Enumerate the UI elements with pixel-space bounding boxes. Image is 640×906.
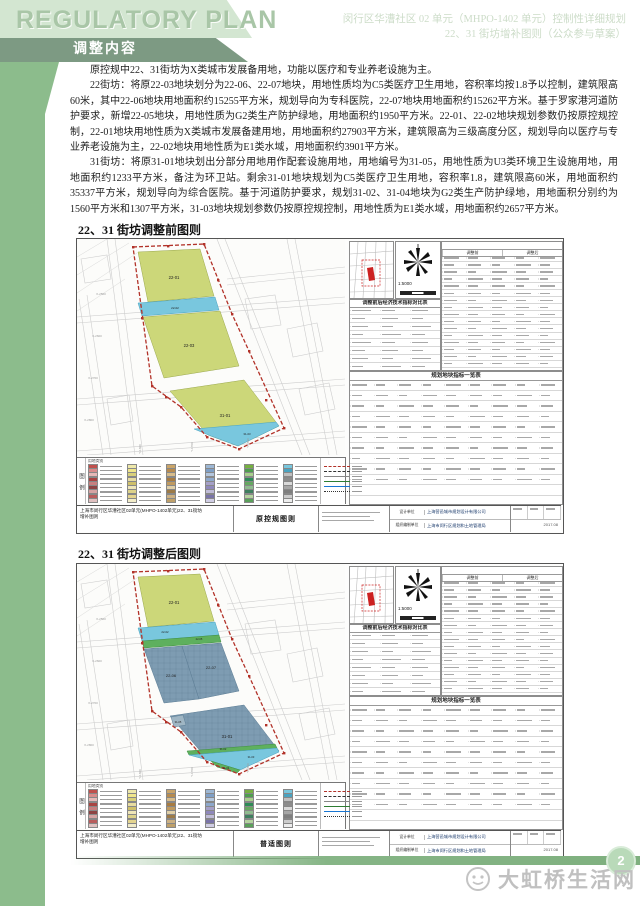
map-label-31-04: 31-04	[223, 766, 230, 770]
map-after: 22-0122-0222-0522-0622-0731-0131-0531-02…	[77, 564, 345, 780]
indicator-table-title	[442, 567, 562, 575]
legend-title: 图例	[77, 783, 86, 829]
paragraph-block22: 22街坊：将原22-03地块划分为22-06、22-07地块，用地性质均为C5类…	[70, 78, 618, 155]
map-label-X-2600: X-2600	[92, 334, 102, 338]
figure2-heading: 22、31 街坊调整后图则	[78, 545, 201, 562]
compare-table-rows	[350, 632, 440, 695]
design-unit-label: 设计单位	[390, 835, 425, 840]
map-label-Y-1800: Y-1800	[246, 763, 250, 773]
legend-linetype	[324, 806, 350, 807]
legend-linetype	[324, 476, 350, 477]
indicator-table: 调整前 调整后	[441, 566, 563, 696]
map-label-X-2500: X-2500	[96, 292, 106, 296]
legend-linetype	[324, 466, 350, 467]
parcel-index-table: 规划地块指标一览表	[349, 696, 563, 830]
map-label-31-03: 31-03	[243, 432, 251, 436]
map-label-22-06: 22-06	[166, 673, 177, 678]
legend-linetype	[324, 791, 350, 792]
legend-swatch	[166, 823, 176, 828]
map-label-Y-1700: Y-1700	[190, 442, 194, 452]
header-subtitle-line2: 22、31 街坊增补图则（公众参与草案）	[343, 27, 626, 42]
org-unit-label: 组织编制单位	[390, 848, 425, 853]
titlebar-units: 设计单位 上海营邑城市规划设计有限公司 组织编制单位 上海市闵行区规划和土地管理…	[390, 506, 511, 532]
legend-linetype	[324, 816, 350, 817]
legend-swatch	[166, 498, 176, 503]
map-label-X-2800: X-2800	[84, 743, 94, 747]
legend-columns: 用地类别	[86, 458, 320, 504]
compare-table: 调整前后经济技术指标对比表	[349, 299, 441, 371]
legend-linetype	[324, 486, 350, 487]
map-label-31-01: 31-01	[220, 413, 231, 418]
legend-swatch	[283, 823, 293, 828]
titlebar-project: 上海市闵行区华漕社区02单元(MHPO-1402单元)22、31街坊 增补图则	[77, 506, 234, 532]
map-label-X-2700: X-2700	[88, 376, 98, 380]
compare-table: 调整前后经济技术指标对比表	[349, 624, 441, 696]
map-label-22-01: 22-01	[169, 600, 180, 605]
inset-map-svg	[350, 567, 393, 623]
titlebar-project: 上海市闵行区华漕社区02单元(MHPO-1402单元)22、31街坊 增补图则	[77, 831, 234, 857]
titlebar-date: 2017.08	[511, 520, 561, 533]
legend-linetype	[324, 796, 350, 797]
legend-linetype	[324, 481, 350, 482]
watermark-logo-icon	[464, 865, 492, 893]
indicator-table-rows	[442, 255, 562, 370]
map-label-22-07: 22-07	[206, 665, 217, 670]
map-label-Y-1700: Y-1700	[190, 767, 194, 777]
legend: 图例 用地类别	[77, 782, 346, 829]
compare-table-rows	[350, 307, 440, 370]
figure1-heading: 22、31 街坊调整前图则	[78, 221, 201, 238]
scale-label: 1:5000	[398, 281, 412, 286]
map-label-31-02: 31-02	[220, 747, 227, 751]
indicator-table: 调整前 调整后	[441, 241, 563, 371]
map-label-22-02: 22-02	[171, 306, 179, 310]
legend-columns: 用地类别	[86, 783, 320, 829]
compass-box: 1:5000	[395, 241, 441, 299]
adjustment-content-text: 原控规中22、31街坊为X类城市发展备用地，功能以医疗和专业养老设施为主。 22…	[70, 63, 618, 217]
location-inset-map	[349, 566, 394, 624]
parcel-index-rows	[350, 705, 562, 829]
wind-rose	[404, 573, 432, 601]
org-unit-name: 上海市闵行区规划和土地管理局	[425, 848, 510, 854]
titlebar-project-line2: 增补图则	[80, 514, 230, 520]
map-label-22-01: 22-01	[169, 275, 180, 280]
design-unit-label: 设计单位	[390, 510, 425, 515]
titlebar-signoff: 2017.08	[511, 506, 561, 532]
design-unit-name: 上海营邑城市规划设计有限公司	[425, 834, 510, 840]
header-subtitle-line1: 闵行区华漕社区 02 单元（MHPO-1402 单元）控制性详细规划	[343, 12, 626, 27]
legend-linetype	[324, 471, 350, 472]
map-label-22-03: 22-03	[184, 343, 195, 348]
map-label-X-2600: X-2600	[92, 659, 102, 663]
left-green-sidebar	[0, 62, 45, 906]
map-label-22-05: 22-05	[196, 637, 203, 641]
legend-title: 图例	[77, 458, 86, 504]
titlebar-sheet-name: 原控规图则	[234, 506, 319, 532]
map-before: 22-0122-0222-0331-0131-03X-2500X-2600X-2…	[77, 239, 345, 455]
titlebar-sheet-name: 普适图则	[234, 831, 319, 857]
paragraph-block31: 31街坊：将原31-01地块划出分部分用地用作配套设施用地，用地编号为31-05…	[70, 155, 618, 217]
titlebar-project-line2: 增补图则	[80, 839, 230, 845]
map-label-X-2800: X-2800	[84, 418, 94, 422]
map-label-Y-1800: Y-1800	[246, 438, 250, 448]
compass-box: 1:5000	[395, 566, 441, 624]
map-label-X-2700: X-2700	[88, 701, 98, 705]
wind-rose	[404, 248, 432, 276]
map-label-22-02: 22-02	[161, 630, 169, 634]
titlebar-notes	[319, 831, 390, 857]
map-label-Y-1600: Y-1600	[138, 769, 142, 779]
location-inset-map	[349, 241, 394, 299]
map-label-31-05: 31-05	[175, 720, 182, 724]
paragraph-intro: 原控规中22、31街坊为X类城市发展备用地，功能以医疗和专业养老设施为主。	[70, 63, 618, 78]
map-before-svg: 22-0122-0222-0331-0131-03X-2500X-2600X-2…	[77, 239, 345, 455]
titlebar-notes	[319, 506, 390, 532]
legend: 图例 用地类别	[77, 457, 346, 504]
document-page: REGULATORY PLAN 闵行区华漕社区 02 单元（MHPO-1402 …	[0, 0, 640, 906]
map-after-svg: 22-0122-0222-0522-0622-0731-0131-0531-02…	[77, 564, 345, 780]
sidebar-notch	[45, 62, 59, 114]
map-label-X-2500: X-2500	[96, 617, 106, 621]
figure-before-plan: 22-0122-0222-0331-0131-03X-2500X-2600X-2…	[76, 238, 564, 534]
indicator-table-title	[442, 242, 562, 250]
map-label-31-01: 31-01	[222, 734, 233, 739]
watermark-text: 大虹桥生活网	[498, 864, 636, 894]
titlebar-units: 设计单位 上海营邑城市规划设计有限公司 组织编制单位 上海市闵行区规划和土地管理…	[390, 831, 511, 857]
legend-swatch	[88, 823, 98, 828]
scale-label: 1:5000	[398, 606, 412, 611]
legend-swatch	[127, 823, 137, 828]
legend-swatch	[205, 498, 215, 503]
watermark: 大虹桥生活网	[464, 864, 636, 894]
header-subtitle: 闵行区华漕社区 02 单元（MHPO-1402 单元）控制性详细规划 22、31…	[343, 12, 626, 42]
legend-linetype	[324, 801, 350, 802]
design-unit-name: 上海营邑城市规划设计有限公司	[425, 509, 510, 515]
scale-bar	[400, 616, 436, 621]
legend-linetype	[324, 811, 350, 812]
org-unit-label: 组织编制单位	[390, 523, 425, 528]
legend-swatch	[283, 498, 293, 503]
inset-map-svg	[350, 242, 393, 298]
figure1-titlebar: 上海市闵行区华漕社区02单元(MHPO-1402单元)22、31街坊 增补图则 …	[77, 505, 561, 532]
legend-swatch	[88, 498, 98, 503]
north-rose-icon	[396, 242, 440, 282]
legend-swatch	[244, 823, 254, 828]
figure-after-plan: 22-0122-0222-0522-0622-0731-0131-0531-02…	[76, 563, 564, 859]
section-banner: 调整内容	[0, 38, 248, 62]
map-label-31-03: 31-03	[248, 755, 255, 759]
map-label-Y-1600: Y-1600	[138, 444, 142, 454]
legend-linetypes	[320, 458, 366, 504]
legend-linetype	[324, 491, 350, 492]
parcel-index-rows	[350, 380, 562, 504]
indicator-table-rows	[442, 580, 562, 695]
legend-swatch	[205, 823, 215, 828]
org-unit-name: 上海市闵行区规划和土地管理局	[425, 523, 510, 529]
page-title: REGULATORY PLAN	[16, 6, 277, 35]
scale-bar	[400, 291, 436, 296]
north-rose-icon	[396, 567, 440, 607]
legend-linetypes	[320, 783, 366, 829]
parcel-index-table: 规划地块指标一览表	[349, 371, 563, 505]
figure2-titlebar: 上海市闵行区华漕社区02单元(MHPO-1402单元)22、31街坊 增补图则 …	[77, 830, 561, 857]
titlebar-signoff: 2017.08	[511, 831, 561, 857]
legend-swatch	[127, 498, 137, 503]
legend-swatch	[244, 498, 254, 503]
section-banner-label: 调整内容	[0, 38, 210, 62]
